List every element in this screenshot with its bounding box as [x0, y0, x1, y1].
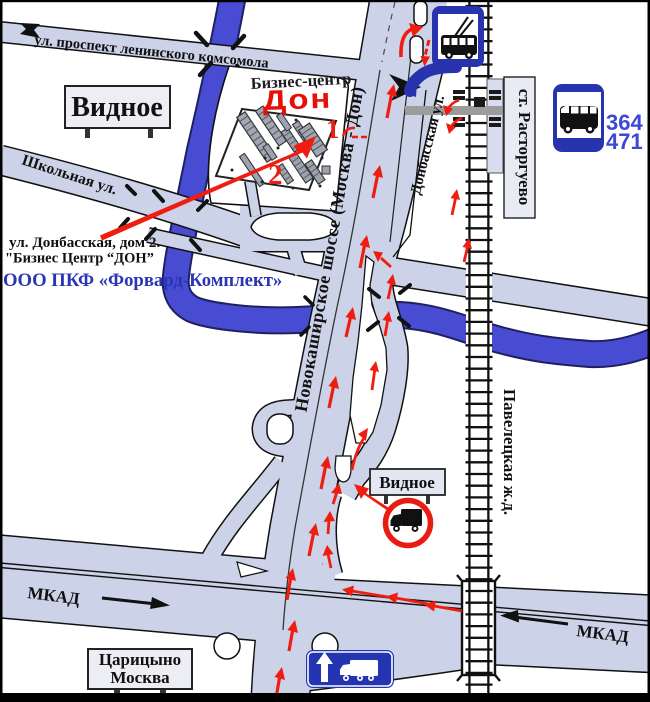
svg-text:Царицыно: Царицыно — [99, 650, 181, 669]
svg-text:Видное: Видное — [71, 92, 163, 123]
svg-text:2: 2 — [268, 159, 283, 191]
svg-text:ст. Расторгуево: ст. Расторгуево — [515, 89, 534, 205]
svg-text:Дон: Дон — [262, 83, 332, 116]
svg-text:Москва: Москва — [110, 668, 170, 687]
svg-text:ул. Донбасская, дом 2.: ул. Донбасская, дом 2. — [9, 234, 160, 251]
svg-text:"Бизнес Центр “ДОН”: "Бизнес Центр “ДОН” — [5, 251, 154, 267]
svg-text:ООО ПКФ «Форвард-Комплект»: ООО ПКФ «Форвард-Комплект» — [3, 270, 282, 291]
svg-text:1: 1 — [326, 114, 340, 144]
svg-text:Видное: Видное — [379, 473, 435, 492]
svg-text:471: 471 — [606, 129, 643, 154]
svg-text:Павелецкая ж.д.: Павелецкая ж.д. — [500, 389, 519, 515]
